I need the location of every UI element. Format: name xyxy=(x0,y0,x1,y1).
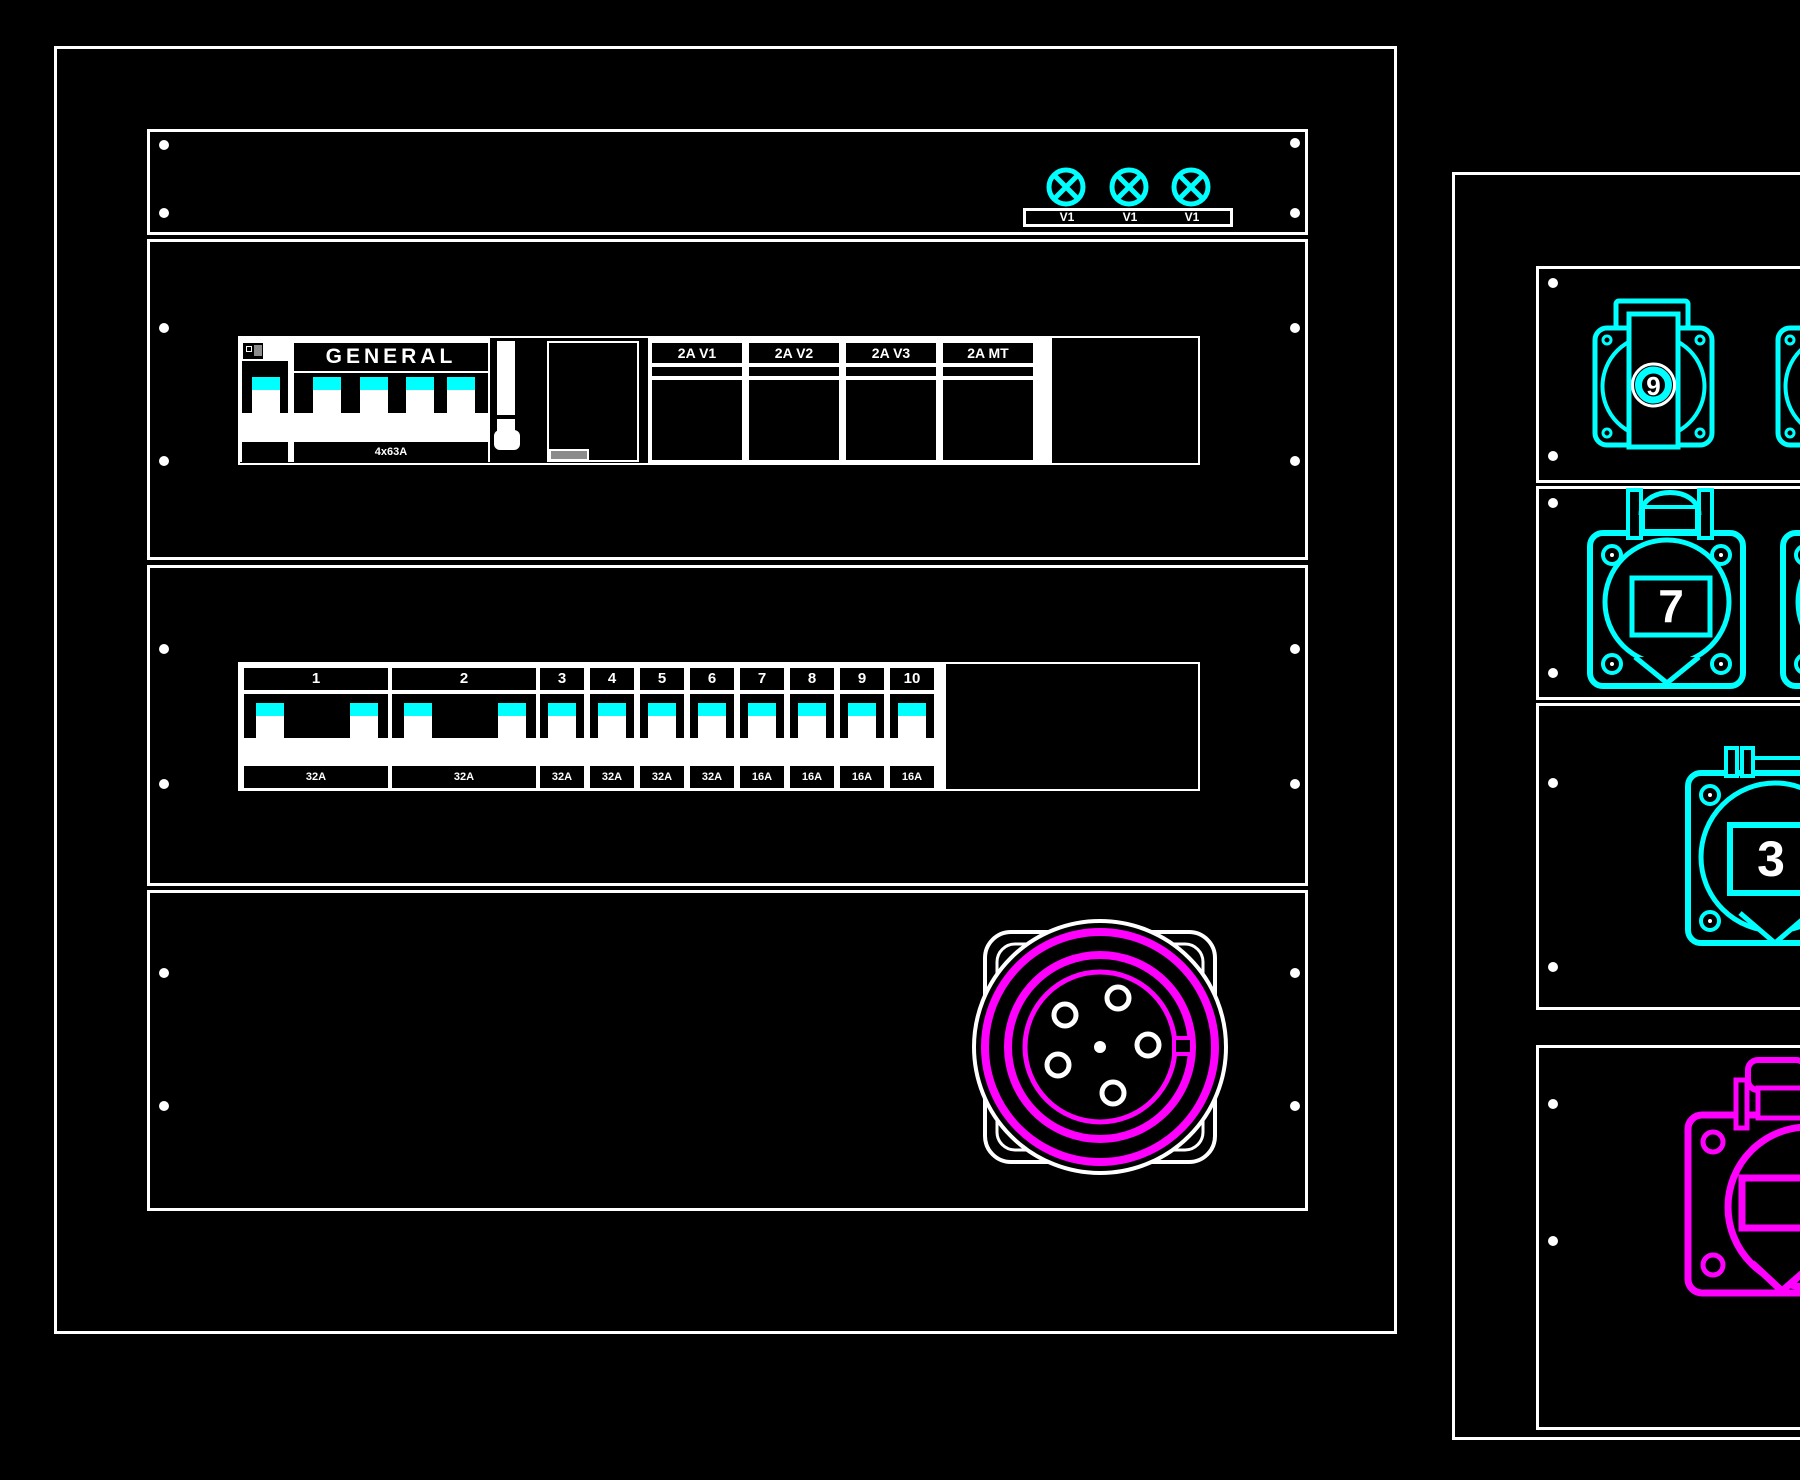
circuit-rating: 32A xyxy=(590,766,634,788)
breaker-toggle xyxy=(313,377,341,413)
main-breaker-label: GENERAL xyxy=(294,343,488,371)
toggle-body xyxy=(252,390,280,413)
screw-hole-icon xyxy=(1796,655,1800,673)
empty-module-cell xyxy=(547,341,639,462)
mounting-hole xyxy=(1548,1236,1558,1246)
circuit-number: 5 xyxy=(640,668,684,690)
breaker-toggle xyxy=(648,703,676,738)
aux-breaker-label: 2A MT xyxy=(943,343,1033,363)
breaker-toggle xyxy=(798,703,826,738)
circuit-rating: 16A xyxy=(840,766,884,788)
indicator-lamp-icon xyxy=(1107,165,1151,209)
breaker-toggle xyxy=(748,703,776,738)
mounting-hole xyxy=(159,323,169,333)
socket-3: 3 xyxy=(1682,745,1800,960)
breaker-toggle xyxy=(350,703,378,738)
breaker-toggle xyxy=(256,703,284,738)
breaker-toggle xyxy=(404,703,432,738)
circuit-rating: 32A xyxy=(540,766,584,788)
aux-breaker-label: 2A V1 xyxy=(652,343,742,363)
connector-pin xyxy=(1102,1082,1124,1104)
main-breaker-rating: 4x63A xyxy=(294,442,488,462)
mounting-hole xyxy=(1548,778,1558,788)
mounting-hole xyxy=(1290,644,1300,654)
indicator-lamp-icon xyxy=(1044,165,1088,209)
test-window-icon xyxy=(246,346,252,352)
socket-label: 3 xyxy=(1757,831,1785,887)
aux-breaker-body xyxy=(652,380,742,460)
breaker-accessory-tab xyxy=(494,430,520,450)
breaker-toggle xyxy=(498,703,526,738)
mounting-hole xyxy=(1290,456,1300,466)
rail-divider xyxy=(497,341,515,415)
circuit-number: 9 xyxy=(840,668,884,690)
breaker-toggle xyxy=(548,703,576,738)
circuit-number: 3 xyxy=(540,668,584,690)
toggle-body xyxy=(406,390,434,413)
socket-label-box xyxy=(1742,1178,1800,1228)
socket-9-partial xyxy=(1773,296,1800,454)
toggle-tip xyxy=(360,377,388,390)
mounting-hole xyxy=(1290,968,1300,978)
mounting-hole xyxy=(1290,779,1300,789)
circuit-number: 1 xyxy=(244,668,388,690)
breaker-toggle xyxy=(848,703,876,738)
screw-hole-icon xyxy=(1796,546,1800,564)
mounting-hole xyxy=(1548,1099,1558,1109)
circuit-number: 7 xyxy=(740,668,784,690)
breaker-toggle xyxy=(698,703,726,738)
circuit-rating: 32A xyxy=(690,766,734,788)
mounting-hole xyxy=(1290,323,1300,333)
connector-keyway xyxy=(1174,1038,1192,1054)
lamp-label: V1 xyxy=(1115,211,1145,224)
hinge-rail xyxy=(1736,1080,1747,1128)
circuit-number: 4 xyxy=(590,668,634,690)
toggle-body xyxy=(313,390,341,413)
mounting-hole xyxy=(159,644,169,654)
aux-breaker-bar xyxy=(943,367,1033,376)
connector-pin xyxy=(1054,1004,1076,1026)
screw-hole-icon xyxy=(1703,1255,1723,1275)
flag-window-icon xyxy=(254,345,262,356)
toggle-tip xyxy=(313,377,341,390)
rail-clip xyxy=(549,449,589,461)
socket-9: 9 xyxy=(1590,296,1725,454)
hinge-latch xyxy=(1758,1088,1800,1118)
lamp-label: V1 xyxy=(1177,211,1207,224)
socket-label: 7 xyxy=(1658,580,1684,632)
mounting-hole xyxy=(159,779,169,789)
connector-center-pin xyxy=(1094,1041,1106,1053)
circuit-rating: 16A xyxy=(890,766,934,788)
mounting-hole xyxy=(1290,1101,1300,1111)
main-breaker-footer-slot xyxy=(242,442,288,462)
socket-7: 7 xyxy=(1585,483,1760,698)
screw-hole-icon xyxy=(1703,1132,1723,1152)
mounting-hole xyxy=(159,456,169,466)
breaker-toggle xyxy=(360,377,388,413)
socket-magenta xyxy=(1680,1055,1800,1300)
circuit-rating: 16A xyxy=(740,766,784,788)
mounting-hole xyxy=(1548,498,1558,508)
breaker-toggle xyxy=(898,703,926,738)
aux-breaker-body xyxy=(749,380,839,460)
toggle-tip xyxy=(252,377,280,390)
panel-drawing-canvas: V1 V1 V1 GENERAL 4x63A 2A V1 2A V2 xyxy=(0,0,1800,1480)
mounting-hole xyxy=(1290,138,1300,148)
mounting-hole xyxy=(159,968,169,978)
aux-breaker-label: 2A V3 xyxy=(846,343,936,363)
toggle-body xyxy=(360,390,388,413)
mounting-hole xyxy=(159,140,169,150)
toggle-tip xyxy=(406,377,434,390)
mounting-hole xyxy=(1548,962,1558,972)
connector-pin xyxy=(1107,987,1129,1009)
circuit-rating: 32A xyxy=(244,766,388,788)
breaker-toggle xyxy=(252,377,280,413)
main-inlet-connector xyxy=(950,897,1250,1197)
toggle-tip xyxy=(447,377,475,390)
aux-breaker-label: 2A V2 xyxy=(749,343,839,363)
circuit-rating: 32A xyxy=(640,766,684,788)
breaker-toggle xyxy=(406,377,434,413)
mounting-hole xyxy=(159,208,169,218)
hinge-rail xyxy=(1726,748,1737,776)
circuit-number: 2 xyxy=(392,668,536,690)
aux-breaker-bar xyxy=(652,367,742,376)
lamp-label: V1 xyxy=(1052,211,1082,224)
mounting-hole xyxy=(1548,668,1558,678)
circuit-number: 8 xyxy=(790,668,834,690)
hinge-rail xyxy=(1742,748,1753,776)
indicator-lamp-icon xyxy=(1169,165,1213,209)
lamp-label-strip: V1 V1 V1 xyxy=(1023,208,1233,227)
socket-7-partial xyxy=(1778,483,1800,698)
aux-breaker-body xyxy=(846,380,936,460)
connector-pin xyxy=(1137,1034,1159,1056)
aux-breaker-bar xyxy=(749,367,839,376)
circuit-number: 10 xyxy=(890,668,934,690)
circuit-rating: 32A xyxy=(392,766,536,788)
hinge-latch xyxy=(1643,507,1697,531)
breaker-toggle xyxy=(598,703,626,738)
toggle-body xyxy=(447,390,475,413)
aux-breaker-bar xyxy=(846,367,936,376)
mounting-hole xyxy=(1548,451,1558,461)
mounting-hole xyxy=(1548,278,1558,288)
mounting-hole xyxy=(159,1101,169,1111)
aux-breaker-body xyxy=(943,380,1033,460)
circuit-rating: 16A xyxy=(790,766,834,788)
mounting-hole xyxy=(1290,208,1300,218)
connector-pin xyxy=(1047,1054,1069,1076)
socket-label: 9 xyxy=(1646,371,1660,401)
circuit-number: 6 xyxy=(690,668,734,690)
breaker-toggle xyxy=(447,377,475,413)
